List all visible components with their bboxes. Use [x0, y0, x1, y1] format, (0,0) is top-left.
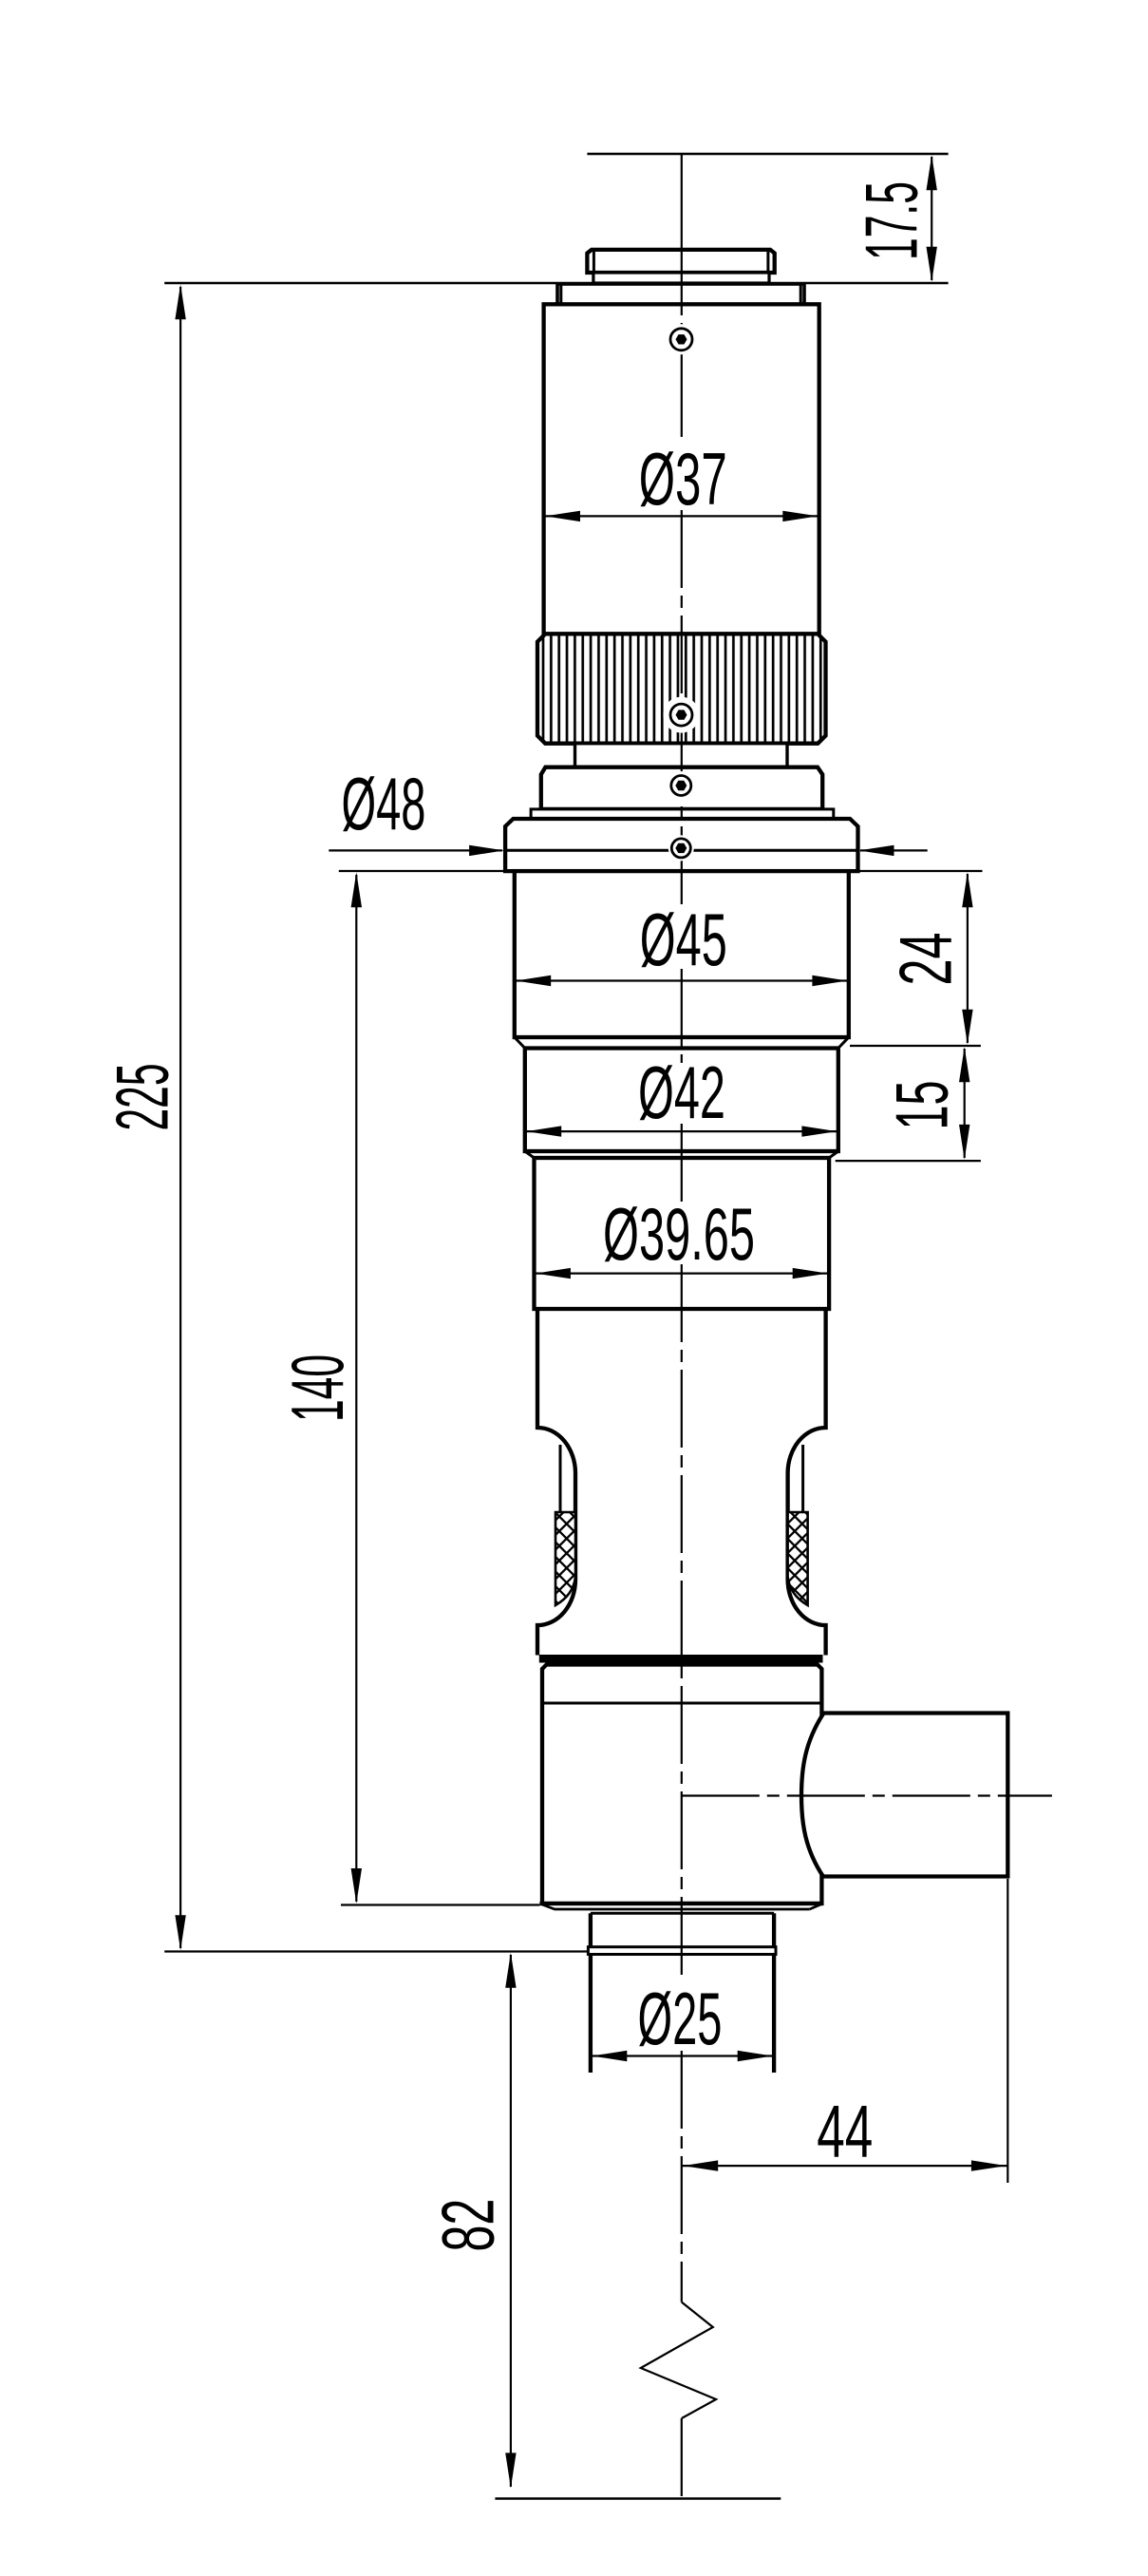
svg-text:140: 140: [275, 1354, 359, 1422]
svg-text:Ø37: Ø37: [639, 437, 727, 521]
svg-text:Ø42: Ø42: [638, 1051, 725, 1134]
svg-text:17.5: 17.5: [850, 181, 933, 260]
svg-text:24: 24: [884, 933, 968, 986]
svg-text:Ø39.65: Ø39.65: [603, 1192, 755, 1276]
svg-text:Ø25: Ø25: [638, 1977, 723, 2060]
svg-text:82: 82: [425, 2199, 509, 2252]
svg-text:225: 225: [101, 1064, 184, 1131]
svg-text:44: 44: [817, 2090, 873, 2173]
svg-text:Ø48: Ø48: [342, 762, 426, 845]
svg-text:15: 15: [880, 1081, 964, 1130]
svg-text:Ø45: Ø45: [640, 898, 727, 981]
